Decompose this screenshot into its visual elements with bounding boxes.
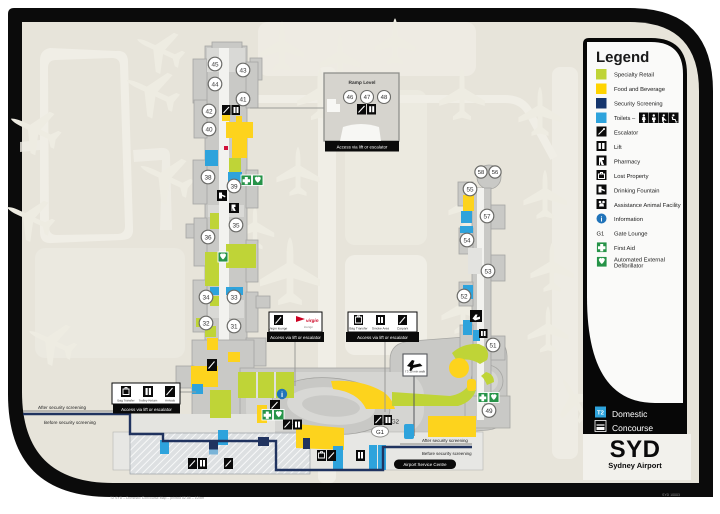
svg-text:36: 36	[204, 234, 212, 241]
svg-text:Ramp Level: Ramp Level	[349, 80, 376, 86]
svg-text:Specialty Retail: Specialty Retail	[614, 72, 654, 79]
svg-text:Domestic: Domestic	[612, 409, 648, 419]
svg-text:58: 58	[478, 169, 484, 176]
svg-text:Lost Property: Lost Property	[614, 174, 649, 180]
svg-text:T2: T2	[597, 410, 605, 417]
svg-text:Lift: Lift	[614, 144, 622, 151]
svg-text:Before security screening: Before security screening	[44, 420, 96, 425]
svg-text:Legend: Legend	[596, 49, 649, 66]
svg-text:54: 54	[463, 237, 471, 244]
svg-text:virgin: virgin	[306, 318, 319, 323]
svg-text:Sydney Airport: Sydney Airport	[608, 461, 662, 470]
svg-text:40: 40	[205, 126, 213, 133]
svg-text:Bag Transfer: Bag Transfer	[349, 327, 368, 331]
svg-text:Information: Information	[614, 216, 643, 223]
svg-text:39: 39	[230, 183, 238, 190]
svg-text:Carpark: Carpark	[397, 327, 409, 331]
svg-text:46: 46	[347, 94, 354, 101]
svg-text:45: 45	[211, 61, 219, 68]
svg-text:57: 57	[483, 213, 491, 220]
svg-text:Access via lift or escalator: Access via lift or escalator	[337, 145, 388, 150]
svg-text:34: 34	[202, 294, 210, 301]
svg-text:44: 44	[211, 81, 219, 88]
svg-text:51: 51	[489, 342, 497, 349]
svg-text:SYD: SYD	[610, 436, 661, 463]
svg-text:SYD 10003: SYD 10003	[662, 493, 680, 497]
svg-text:i: i	[281, 390, 283, 399]
svg-text:Security Screening: Security Screening	[614, 101, 663, 108]
svg-text:31: 31	[230, 323, 238, 330]
svg-text:56: 56	[492, 169, 498, 176]
svg-text:Gate Lounge: Gate Lounge	[614, 231, 648, 238]
svg-text:Automated External: Automated External	[614, 257, 665, 264]
svg-text:Concourse: Concourse	[612, 423, 653, 433]
svg-text:Access via lift or escalator: Access via lift or escalator	[121, 407, 172, 412]
svg-text:G1: G1	[597, 231, 605, 238]
svg-text:Arrivals: Arrivals	[165, 399, 176, 403]
svg-text:49: 49	[485, 408, 493, 415]
svg-text:47: 47	[364, 94, 371, 101]
svg-text:48: 48	[381, 94, 388, 101]
svg-text:Trolley Return: Trolley Return	[139, 399, 158, 403]
svg-text:52: 52	[460, 293, 468, 300]
svg-text:First Aid: First Aid	[614, 245, 635, 252]
svg-text:Assistance Animal Facility: Assistance Animal Facility	[614, 202, 681, 209]
svg-text:T3 10 min walk: T3 10 min walk	[405, 370, 426, 374]
svg-text:G1: G1	[376, 429, 385, 436]
svg-text:43: 43	[239, 67, 247, 74]
svg-text:32: 32	[202, 320, 210, 327]
svg-text:Escalator: Escalator	[614, 130, 638, 137]
svg-text:Before security screening: Before security screening	[422, 451, 472, 456]
svg-text:42: 42	[205, 108, 213, 115]
svg-text:55: 55	[466, 186, 474, 193]
svg-text:53: 53	[484, 268, 492, 275]
svg-text:G2: G2	[391, 419, 400, 426]
svg-text:Toilets –: Toilets –	[614, 115, 636, 122]
svg-text:After security screening: After security screening	[422, 438, 468, 443]
svg-text:Airport Service Centre: Airport Service Centre	[403, 462, 447, 467]
svg-text:35: 35	[232, 222, 240, 229]
svg-text:Bag Transfer: Bag Transfer	[117, 399, 134, 403]
svg-text:T2 SYD – Domestic Concourse Ma: T2 SYD – Domestic Concourse Map – printe…	[110, 496, 204, 500]
svg-text:i: i	[601, 216, 603, 224]
svg-text:41: 41	[239, 96, 247, 103]
svg-text:Virgin lounge: Virgin lounge	[269, 327, 288, 331]
svg-text:Food and Beverage: Food and Beverage	[614, 86, 665, 93]
svg-text:Pharmacy: Pharmacy	[614, 159, 640, 166]
svg-text:Drinking Fountain: Drinking Fountain	[614, 188, 659, 195]
svg-text:38: 38	[204, 174, 212, 181]
svg-text:Smoke Area: Smoke Area	[372, 327, 390, 331]
svg-text:Access via lift or escalator: Access via lift or escalator	[357, 335, 408, 340]
svg-text:lounge: lounge	[304, 325, 313, 329]
svg-text:Defibrillator: Defibrillator	[614, 263, 643, 270]
svg-text:33: 33	[230, 294, 238, 301]
svg-text:After security screening: After security screening	[38, 405, 86, 410]
svg-text:Access via lift or escalator: Access via lift or escalator	[270, 335, 321, 340]
